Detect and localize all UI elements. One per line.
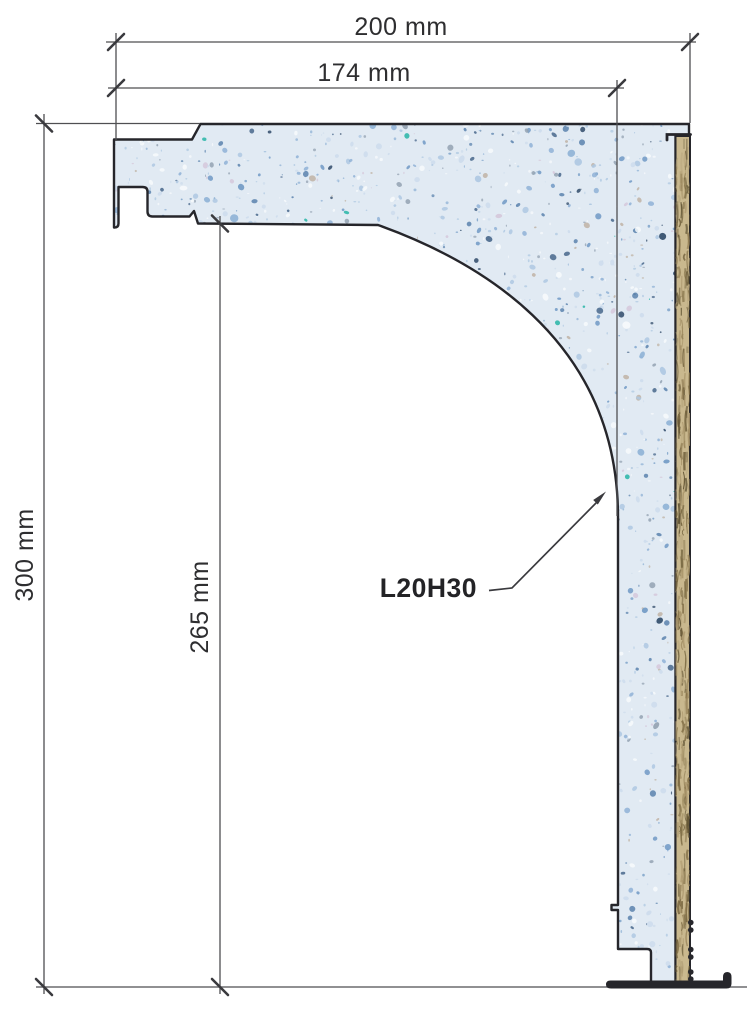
- cornice-foam-body: [110, 118, 693, 990]
- dim-174-label: 174 mm: [317, 59, 410, 87]
- clip-bump: [688, 947, 694, 953]
- clip-bump: [688, 927, 694, 933]
- dim-265-label: 265 mm: [186, 560, 214, 653]
- product-code-label: L20H30: [380, 573, 477, 603]
- fixing-clip-bumps: [688, 920, 694, 982]
- drawing-canvas: 200 mm 174 mm 300 mm 265 mm L20H30: [0, 0, 747, 1011]
- leader-arrowhead-icon: [593, 492, 606, 505]
- cornice-technical-drawing: 200 mm 174 mm 300 mm 265 mm L20H30: [0, 0, 747, 1011]
- clip-bump: [688, 969, 694, 975]
- clip-bump: [688, 920, 694, 926]
- dimension-height-300: 300 mm: [11, 114, 200, 995]
- foam-fill: [114, 124, 689, 984]
- dim-300-label: 300 mm: [11, 508, 39, 601]
- clip-bump: [688, 954, 694, 960]
- product-leader: L20H30: [380, 492, 606, 604]
- leader-line: [489, 501, 599, 591]
- dim-200-label: 200 mm: [354, 13, 447, 41]
- dimension-height-265: 265 mm: [186, 216, 228, 996]
